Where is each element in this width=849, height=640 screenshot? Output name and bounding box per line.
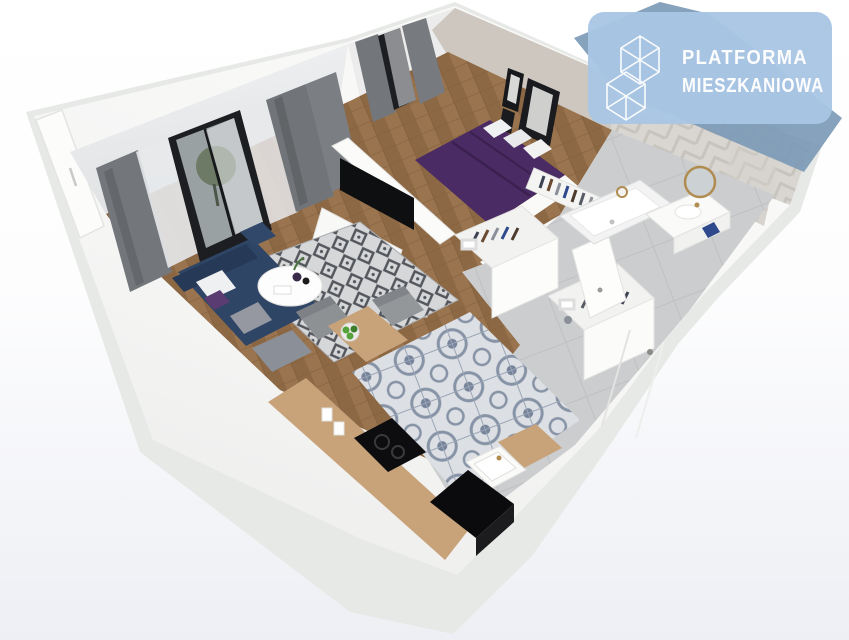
brand-badge: PLATFORMA MIESZKANIOWA <box>588 12 832 124</box>
round-mirror <box>685 167 715 197</box>
door-handle <box>647 349 653 355</box>
fruit-bowl <box>341 323 359 341</box>
brand-line-2: MIESZKANIOWA <box>682 75 824 97</box>
floor-plan-render: PLATFORMA MIESZKANIOWA <box>0 0 849 640</box>
brand-line-1: PLATFORMA <box>682 47 808 69</box>
apartment-3d-scene: PLATFORMA MIESZKANIOWA <box>0 0 849 640</box>
